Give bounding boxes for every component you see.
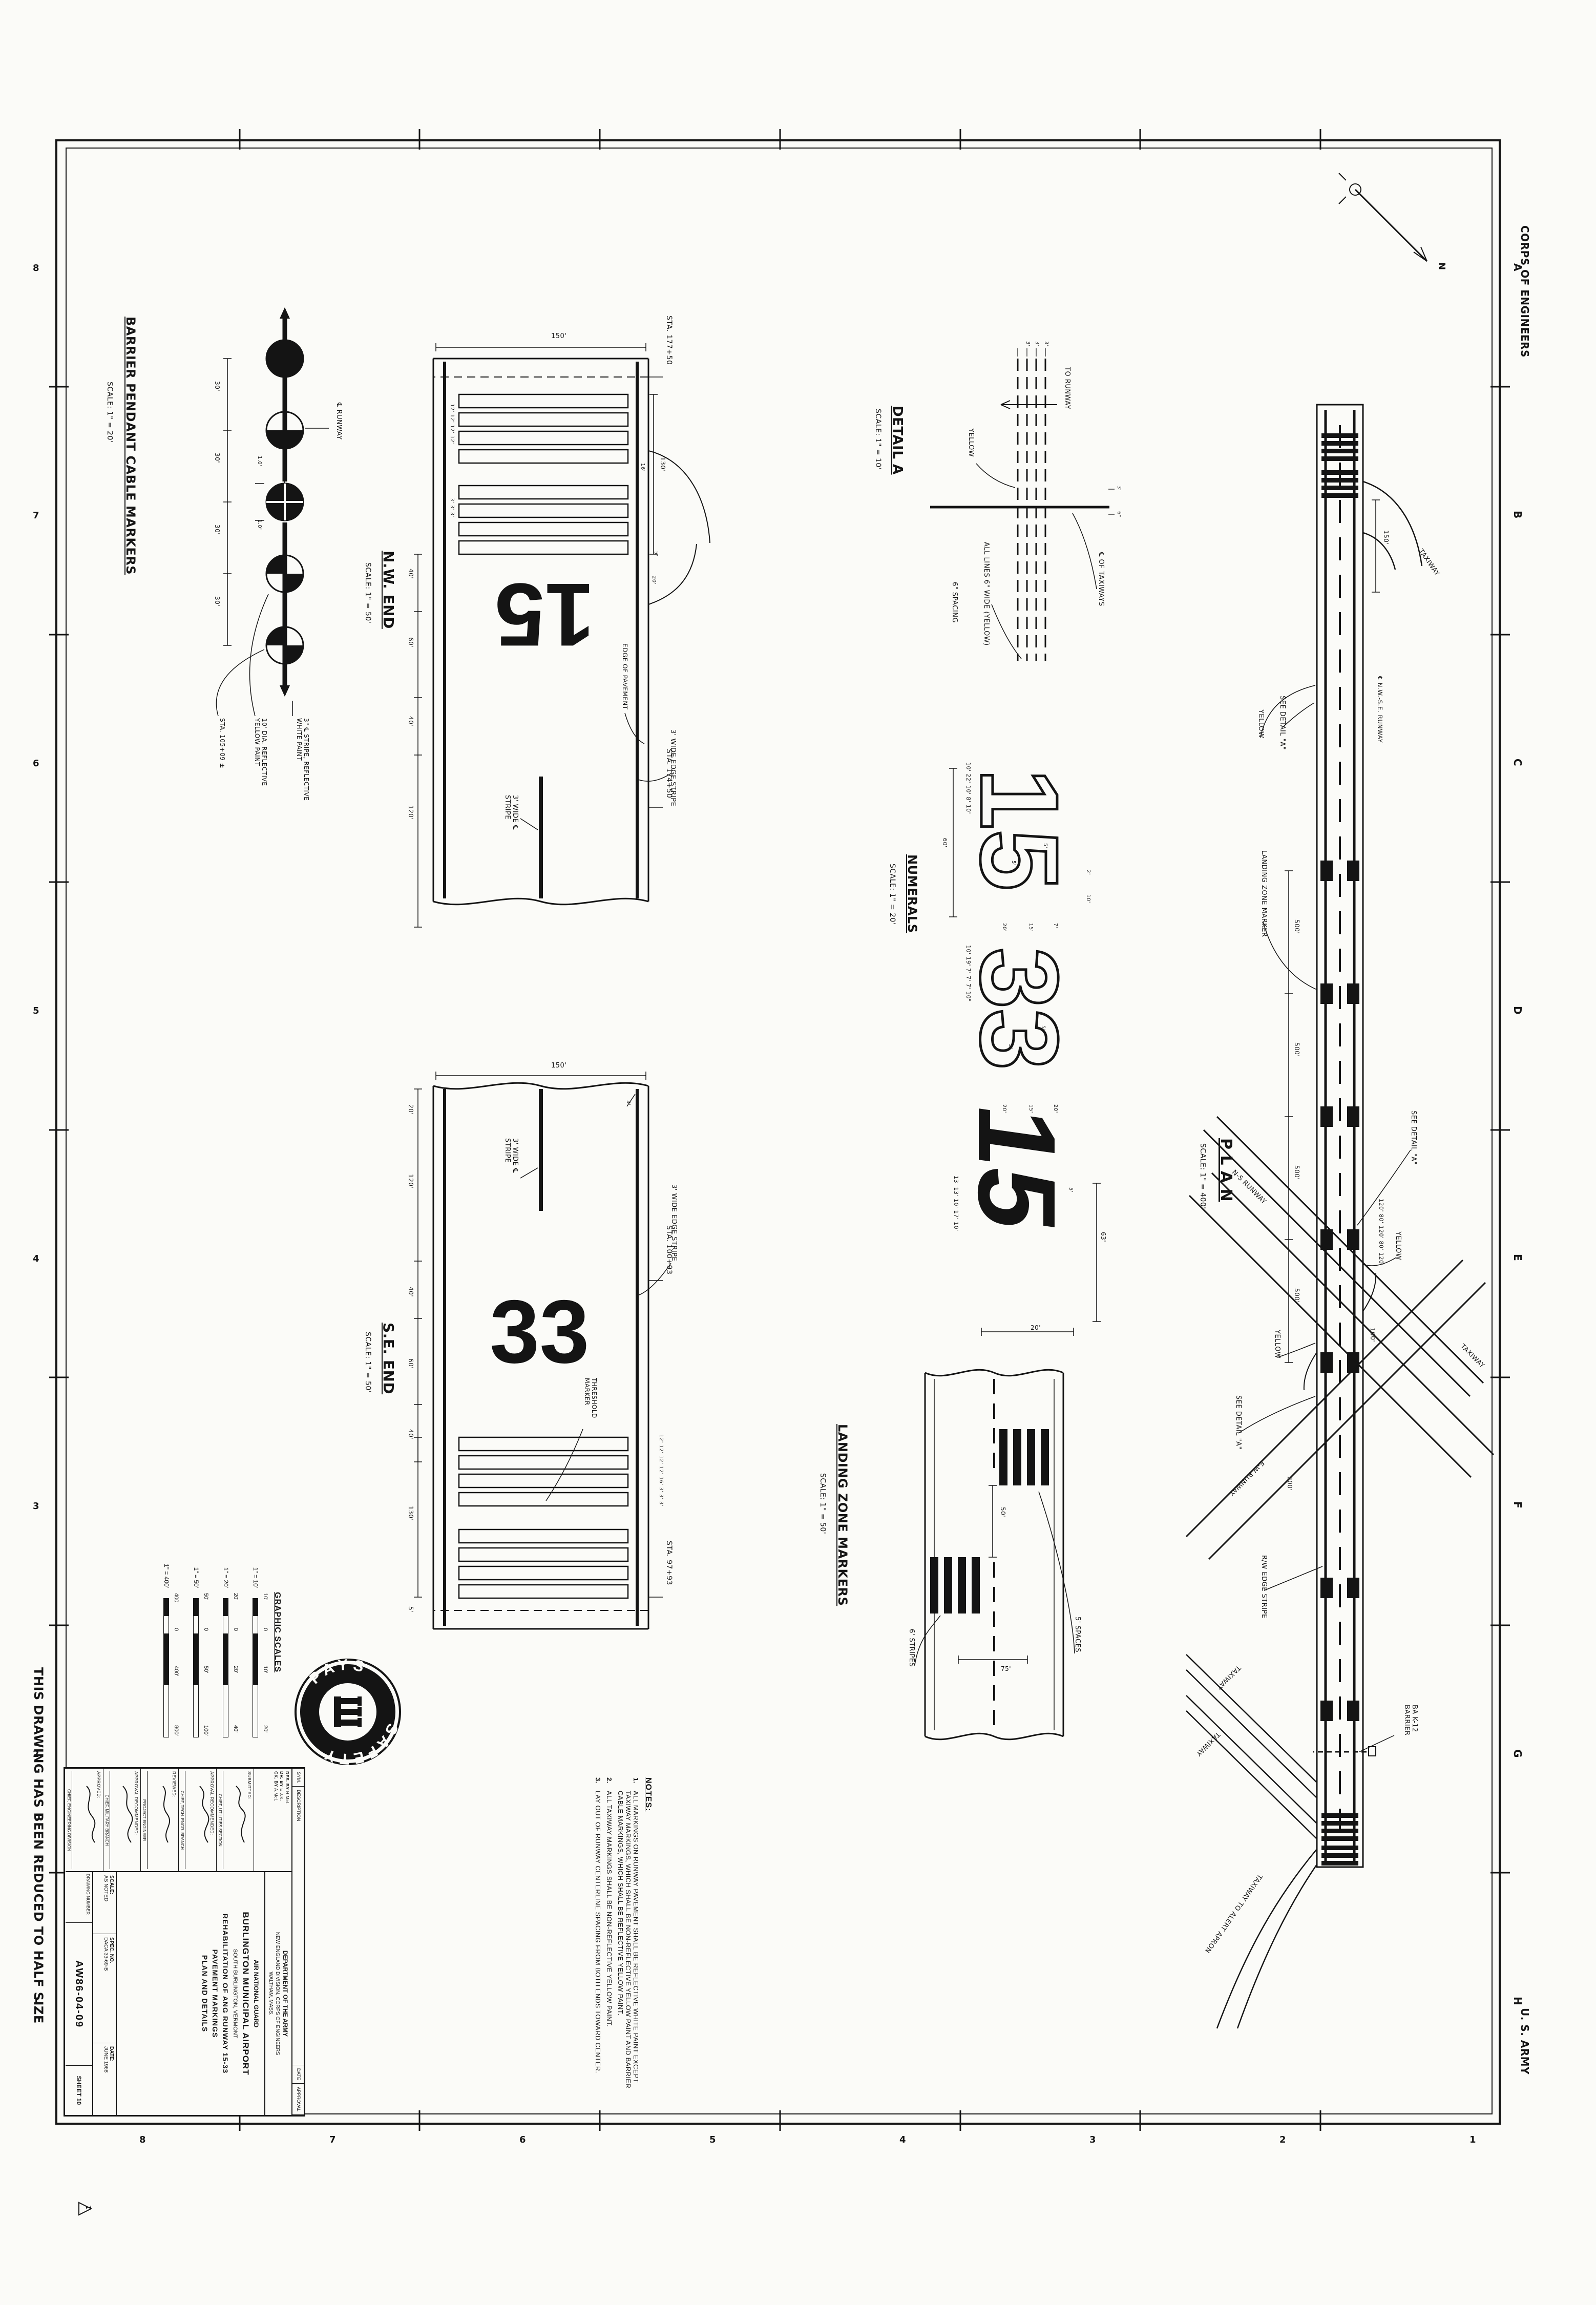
graphic-scale-row: 1" = 10'10'010'20' [243, 1537, 272, 1777]
sheet-number: SHEET 10 [66, 2065, 92, 2115]
se-scale: SCALE: 1" = 50' [364, 1332, 372, 1393]
note-text: ALL MARKINGS ON RUNWAY PAVEMENT SHALL BE… [617, 1791, 640, 2090]
scale-tick-label: 20' [262, 1725, 268, 1732]
lz-5-spaces: 5' SPACES [1073, 1617, 1081, 1652]
scale-caption: 1" = 400' [163, 1537, 170, 1588]
barrier-scale: SCALE: 1" = 20' [106, 382, 114, 443]
scale-caption: 1" = 10' [252, 1537, 259, 1588]
zone-letter-f: F [1511, 1501, 1523, 1508]
drafting-credits: DES. BY H.McL DR. BY E.J.K. CK. BY A.McL [254, 1769, 291, 1871]
barrier-white-paint: 3" ℄ STRIPE, REFLECTIVE WHITE PAINT [295, 718, 309, 821]
scale-tick-label: 10' [262, 1666, 268, 1673]
lz-6-stripes: 6' STRIPES [907, 1629, 915, 1667]
project-title-area: AIR NATIONAL GUARD BURLINGTON MUNICIPAL … [117, 1872, 264, 2115]
zone-number-1: 1 [33, 1997, 39, 2007]
scale-bar-segment [253, 1616, 258, 1633]
detail-a-to-runway: TO RUNWAY [1063, 367, 1070, 409]
castle-icon [334, 1696, 362, 1727]
se-cl-stripe-label: 3' WIDE ℄ STRIPE [503, 1138, 518, 1195]
nw-sta-177-50: STA. 177+50 [665, 316, 673, 365]
plan-dim-500-1: 500' [1293, 919, 1300, 934]
se-edge-stripe-label: 3' WIDE EDGE STRIPE [669, 1184, 677, 1261]
plan-yellow-3: YELLOW [1273, 1330, 1280, 1358]
note-number: 1. [617, 1777, 640, 1791]
num15-dim-7: 7' [1053, 923, 1059, 928]
corps-of-engineers-label: CORPS OF ENGINEERS [1519, 225, 1530, 358]
note-item: 1.ALL MARKINGS ON RUNWAY PAVEMENT SHALL … [617, 1777, 640, 2090]
rev-sym: SYM. [292, 1769, 304, 1787]
fig15-dim-20: 20' [1031, 1325, 1041, 1332]
num15-dim-60: 60' [941, 838, 948, 848]
scale-bar-segment [223, 1616, 228, 1633]
num33-dim-20b: 20' [1001, 1104, 1007, 1113]
barrier-title: BARRIER PENDANT CABLE MARKERS [123, 317, 137, 575]
zone-letter-h: H [1511, 1997, 1523, 2005]
zone-number-r8: 8 [139, 2135, 146, 2146]
nw-dim-5: 5' [653, 551, 659, 556]
zone-letter-d: D [1511, 1006, 1523, 1015]
se-dim-3: 3' [625, 1100, 632, 1105]
barrier-dim-30-1: 30' [213, 381, 220, 391]
barrier-cl-runway: ℄ RUNWAY [334, 403, 342, 440]
se-title: S.E. END [380, 1323, 396, 1394]
se-widths: 12' 12' 12' 12' 16' 3' 3' 3' [658, 1434, 664, 1506]
se-dim-150: 150' [551, 1062, 566, 1070]
plan-title: P L A N [1217, 1138, 1235, 1202]
num15-dim-5b: 5' [1011, 861, 1017, 866]
nw-dim-150: 150' [551, 333, 566, 341]
rev-date: DATE [292, 2065, 304, 2084]
approvals-column: DES. BY H.McL DR. BY E.J.K. CK. BY A.McL… [66, 1769, 291, 1872]
graphic-scale-row: 1" = 400'400'0400'800' [154, 1537, 183, 1777]
scale-bar-segment [194, 1616, 198, 1633]
signature [158, 1784, 173, 1846]
scale-bar [223, 1598, 228, 1737]
scale-bar-segment [253, 1633, 258, 1685]
fig15-dim-5: 5' [1068, 1187, 1074, 1192]
fig15-widths: 13' 13' 10' 17' 10' [952, 1176, 959, 1231]
agency-header: DEPARTMENT OF THE ARMY NEW ENGLAND DIVIS… [264, 1872, 291, 2115]
plan-threshold-stripes-se [1321, 1813, 1358, 1866]
detail-a-scale: SCALE: 1" = 10' [874, 409, 882, 470]
note-text: ALL TAXIWAY MARKINGS SHALL BE NON-REFLEC… [605, 1791, 613, 2027]
plan-bak12-barrier: BA K-12 BARRIER [1402, 1705, 1418, 1754]
scale-tick-label: 800' [173, 1725, 179, 1735]
barrier-dim-30-2: 30' [213, 453, 220, 463]
nw-dim-130: 130' [659, 457, 666, 471]
notes-block: NOTES: 1.ALL MARKINGS ON RUNWAY PAVEMENT… [594, 1777, 653, 2090]
plan-dim-100: 100' [1369, 1328, 1376, 1342]
scale-bar-segment [164, 1599, 169, 1616]
plan-dim-200: 200' [1286, 1476, 1293, 1491]
zone-number-7: 7 [33, 511, 39, 521]
numerals-figures: 15 33 15 [955, 768, 1081, 1238]
se-dim-40b: 40' [407, 1429, 414, 1439]
north-label: N [1436, 262, 1446, 270]
rev-approval: APPROVAL [292, 2084, 304, 2115]
plan-rw-edge-stripe: R/W EDGE STRIPE [1259, 1555, 1267, 1619]
scale-bar-segment [253, 1685, 258, 1737]
detail-a-yellow: YELLOW [967, 428, 974, 457]
zone-letter-e: E [1511, 1254, 1523, 1261]
scale-bar [253, 1598, 258, 1737]
scale-tick-label: 0 [233, 1628, 239, 1631]
barrier-dim-1-0a: 1.0' [257, 456, 263, 467]
lz-dim-75: 75' [1001, 1666, 1011, 1673]
detail-a-cl-taxiways: ℄ OF TAXIWAYS [1097, 552, 1104, 606]
scale-bar-segment [223, 1685, 228, 1737]
drawing-subtitle-1: PAVEMENT MARKINGS [210, 1872, 220, 2115]
scale-bar-segment [194, 1599, 198, 1616]
zone-letter-a: A [1511, 263, 1523, 271]
zone-number-5: 5 [33, 1006, 39, 1017]
zone-number-r1: 1 [1469, 2135, 1476, 2146]
note-number: 3. [594, 1777, 602, 1791]
se-sta-97-93: STA. 97+93 [665, 1541, 673, 1585]
se-threshold-stripes [459, 1437, 628, 1598]
agency-line1: DEPARTMENT OF THE ARMY [281, 1872, 289, 2115]
plan-centerline-pattern: 120' 80' 120' 80' 120' [1377, 1199, 1384, 1266]
detail-a-dim-3-1: 3' [1043, 341, 1049, 346]
signature [120, 1784, 135, 1846]
svg-text:33: 33 [958, 948, 1081, 1070]
svg-text:15: 15 [495, 564, 595, 664]
scale-tick-label: 0 [173, 1628, 179, 1631]
submitted-cell: SUBMITTED: CHIEF, UTILITIES SECTION [216, 1769, 254, 1871]
se-dim-5: 5' [407, 1606, 414, 1612]
svg-text:15: 15 [955, 1098, 1079, 1238]
drawing-sheet: 15 33 15 [0, 0, 1596, 2305]
plan-taxiway-curves [1186, 481, 1422, 2028]
detail-a-6-spacing: 6" SPACING [950, 582, 958, 623]
zone-letter-g: G [1511, 1749, 1523, 1758]
nw-dim-120: 120' [407, 805, 414, 820]
scale-bar [193, 1598, 199, 1737]
plan-dim-500-3: 500' [1293, 1165, 1300, 1180]
note-item: 3.LAY OUT OF RUNWAY CENTERLINE SPACING F… [594, 1777, 602, 2090]
se-threshold-marker: THRESHOLD MARKER [583, 1378, 597, 1434]
num15-dim-10: 10' [1085, 894, 1091, 903]
zone-number-r3: 3 [1089, 2135, 1096, 2146]
lz-title: LANDING ZONE MARKERS [835, 1424, 849, 1606]
scale-bar-segment [253, 1599, 258, 1616]
zone-number-r4: 4 [899, 2135, 906, 2146]
plan-see-detail-a-1: SEE DETAIL "A" [1278, 696, 1286, 750]
org-line: AIR NATIONAL GUARD [251, 1872, 260, 2115]
graphic-scales-title: GRAPHIC SCALES [272, 1592, 282, 1777]
drawing-number: AW86-04-09 [66, 1923, 92, 2065]
detail-a-title: DETAIL A [889, 406, 905, 475]
barrier-dim-30-3: 30' [213, 525, 220, 535]
note-item: 2.ALL TAXIWAY MARKINGS SHALL BE NON-REFL… [605, 1777, 613, 2090]
num33-dim-15: 15' [1028, 1104, 1034, 1113]
lz-runway-band [925, 1370, 1063, 1740]
approval-recommended-1-cell: APPROVAL RECOMMENDED: CHIEF, TECH. ENGR.… [178, 1769, 216, 1871]
zone-number-r6: 6 [519, 2135, 526, 2146]
scale-tick-label: 50' [203, 1666, 209, 1673]
se-dim-40a: 40' [407, 1287, 414, 1297]
drawing-subtitle-2: PLAN AND DETAILS [200, 1872, 210, 2115]
zone-number-8: 8 [33, 263, 39, 274]
se-dim-20: 20' [407, 1104, 414, 1115]
numerals-title: NUMERALS [905, 854, 919, 933]
signature [233, 1784, 248, 1846]
nw-dim-20: 20' [651, 576, 657, 584]
zone-number-r5: 5 [709, 2135, 716, 2146]
plan-see-detail-a-2: SEE DETAIL "A" [1409, 1110, 1417, 1165]
barrier-sta-105-09: STA. 105+09 ± [218, 718, 225, 768]
plan-dim-500-2: 500' [1293, 1042, 1300, 1057]
zone-number-r2: 2 [1279, 2135, 1286, 2146]
scale-tick-label: 400' [173, 1666, 179, 1676]
plan-centerline-label: ℄ N.W.-S.E. RUNWAY [1376, 676, 1383, 743]
signature [82, 1784, 98, 1846]
nw-edge-stripe-label: 3' WIDE EDGE STRIPE [668, 729, 676, 806]
project-name: REHABILITATION OF ANG RUNWAY 15-33 [220, 1872, 230, 2115]
nw-dim-40a: 40' [407, 569, 414, 579]
spec-cell: SPEC. NO.DACA 33-69-B [93, 1934, 116, 2043]
agency-line3: WALTHAM, MASS. [267, 1872, 274, 2115]
se-numeral-33: 33 [490, 1282, 590, 1382]
scale-tick-label: 20' [233, 1593, 239, 1600]
scale-cell: SCALE:AS NOTED [93, 1872, 116, 1934]
scale-bar-segment [194, 1633, 198, 1685]
title-block: SYM. DESCRIPTION DATE APPROVAL DES. BY H… [64, 1767, 305, 2117]
scale-tick-label: 40' [233, 1725, 239, 1732]
svg-text:33: 33 [490, 1282, 590, 1382]
nw-cl-stripe-label: 3' WIDE ℄ STRIPE [503, 795, 518, 851]
plan-runway-band [1317, 405, 1363, 1867]
note-number: 2. [605, 1777, 613, 1791]
note-text: LAY OUT OF RUNWAY CENTERLINE SPACING FRO… [594, 1791, 602, 2073]
safety-pays-logo: SAFETY PAYS [292, 1657, 403, 1767]
zone-number-3: 3 [33, 1501, 39, 1512]
barrier-dim-30-4: 30' [213, 596, 220, 606]
airport-location: SOUTH BURLINGTON, VERMONT [230, 1872, 239, 2115]
notes-list: 1.ALL MARKINGS ON RUNWAY PAVEMENT SHALL … [594, 1777, 640, 2090]
nw-dim-60: 60' [407, 637, 414, 647]
date-cell: DATE:JUNE 1968 [93, 2043, 116, 2115]
detail-a-dim-3-top: 3' [1116, 486, 1122, 491]
barrier-dimension-lines [216, 359, 329, 716]
plan-dim-150: 150' [1382, 530, 1389, 544]
detail-a-all-lines: ALL LINES 6" WIDE (YELLOW) [982, 542, 990, 646]
barrier-dim-1-0b: 1.0' [257, 519, 263, 530]
scale-bar-segment [194, 1685, 198, 1737]
plan-scale: SCALE: 1" = 400' [1199, 1143, 1207, 1209]
approval-recommended-2-cell: APPROVAL RECOMMENDED: CHIEF, MILITARY BR… [103, 1769, 141, 1871]
zone-letter-c: C [1511, 759, 1523, 766]
signature [196, 1784, 211, 1846]
scale-bar-segment [223, 1633, 228, 1685]
nw-threshold-stripes [459, 394, 628, 554]
zone-number-4: 4 [33, 1254, 39, 1265]
nw-dim-16: 16' [640, 463, 646, 472]
scale-tick-label: 10' [262, 1593, 268, 1600]
num33-dim-5b: 5' [1007, 1044, 1014, 1049]
scale-tick-label: 0 [262, 1628, 268, 1631]
reviewed-cell: REVIEWED: PROJECT ENGINEER [140, 1769, 178, 1871]
detail-a-dim-6: 6" [1116, 511, 1122, 517]
lz-stripes [930, 1429, 1049, 1613]
numerals-scale: SCALE: 1" = 20' [888, 864, 896, 925]
scale-tick-label: 50' [203, 1593, 209, 1600]
barrier-yellow-paint: 10' DIA. REFLECTIVE YELLOW PAINT [253, 718, 267, 810]
scale-tick-label: 100' [203, 1725, 209, 1735]
plan-yellow-2: YELLOW [1394, 1231, 1401, 1260]
num15-widths: 10' 22' 10' 8' 10' [964, 762, 971, 814]
nw-widths-12: 12' 12' 12' 12' [449, 404, 455, 444]
nw-scale: SCALE: 1" = 50' [364, 562, 372, 623]
graphic-scales-rows: 1" = 10'10'010'20'1" = 20'20'020'40'1" =… [154, 1537, 272, 1777]
svg-text:15: 15 [958, 768, 1081, 891]
scale-bar-segment [164, 1633, 169, 1685]
revision-delta: 1 [83, 2205, 91, 2210]
se-dim-130: 130' [407, 1506, 414, 1520]
graphic-scale-row: 1" = 20'20'020'40' [213, 1537, 243, 1777]
revision-header-row: SYM. DESCRIPTION DATE APPROVAL [291, 1769, 304, 2115]
lz-scale: SCALE: 1" = 50' [818, 1473, 827, 1534]
num15-dim-20: 20' [1001, 923, 1007, 932]
approved-cell: APPROVED: CHIEF, ENGINEERING DIVISION [66, 1769, 103, 1871]
scale-tick-label: 0 [203, 1628, 209, 1631]
scanned-drawing-page: 15 33 15 [0, 0, 1596, 2305]
notes-title: NOTES: [643, 1777, 653, 2090]
plan-dim-500-4: 500' [1293, 1288, 1300, 1303]
nw-title: N.W. END [380, 551, 396, 629]
scale-bar [163, 1598, 169, 1737]
graphic-scales-block: GRAPHIC SCALES 1" = 10'10'010'20'1" = 20… [154, 1537, 282, 1777]
fig15-dim-63: 63' [1099, 1232, 1106, 1242]
scale-bar-segment [223, 1599, 228, 1616]
drawing-number-label: DRAWING NUMBER [66, 1872, 92, 1923]
plan-barrier-line [1313, 1747, 1376, 1756]
detail-a-dim-3-2: 3' [1034, 341, 1040, 346]
nw-numeral-15: 15 [495, 564, 595, 664]
nw-widths-3: 3' 3' 3' [449, 498, 455, 517]
detail-a-dim-3-3: 3' [1025, 341, 1031, 346]
scale-caption: 1" = 20' [222, 1537, 229, 1588]
num33-dim-5a: 5' [1040, 1025, 1046, 1031]
num15-dim-5a: 5' [1042, 843, 1048, 848]
plan-see-detail-a-3: SEE DETAIL "A" [1234, 1395, 1242, 1450]
scale-tick-label: 20' [233, 1666, 239, 1673]
zone-number-6: 6 [33, 759, 39, 769]
plan-landing-zone-marker-label: LANDING ZONE MARKER [1259, 850, 1267, 937]
agency-line2: NEW ENGLAND DIVISION, CORPS OF ENGINEERS [274, 1872, 281, 2115]
zone-number-2: 2 [33, 1749, 39, 1760]
zone-number-r7: 7 [329, 2135, 336, 2146]
reduced-note: THIS DRAWING HAS BEEN REDUCED TO HALF SI… [31, 1667, 45, 2024]
num15-dim-2: 2' [1085, 870, 1091, 875]
scale-bar-segment [164, 1685, 169, 1737]
scale-tick-label: 400' [173, 1593, 179, 1603]
scale-bar-segment [164, 1616, 169, 1633]
se-dim-60: 60' [407, 1358, 414, 1369]
num33-dim-20a: 20' [1053, 1104, 1059, 1113]
scale-caption: 1" = 50' [193, 1537, 200, 1588]
nw-dim-40b: 40' [407, 716, 414, 726]
plan-yellow-1: YELLOW [1256, 709, 1264, 738]
rev-description: DESCRIPTION [292, 1787, 304, 2065]
nw-edge-of-pavement: EDGE OF PAVEMENT [621, 643, 628, 710]
lz-dim-50: 50' [999, 1507, 1006, 1517]
se-dim-120: 120' [407, 1174, 414, 1188]
north-arrow-icon [1339, 173, 1427, 261]
num15-dim-15: 15' [1028, 923, 1034, 932]
graphic-scale-row: 1" = 50'50'050'100' [183, 1537, 213, 1777]
us-army-label: U. S. ARMY [1519, 2008, 1530, 2074]
num33-widths: 10' 19' 7' 7' 7' 10" [964, 945, 971, 1002]
airport-name: BURLINGTON MUNICIPAL AIRPORT [239, 1872, 251, 2115]
zone-letter-b: B [1511, 511, 1523, 519]
